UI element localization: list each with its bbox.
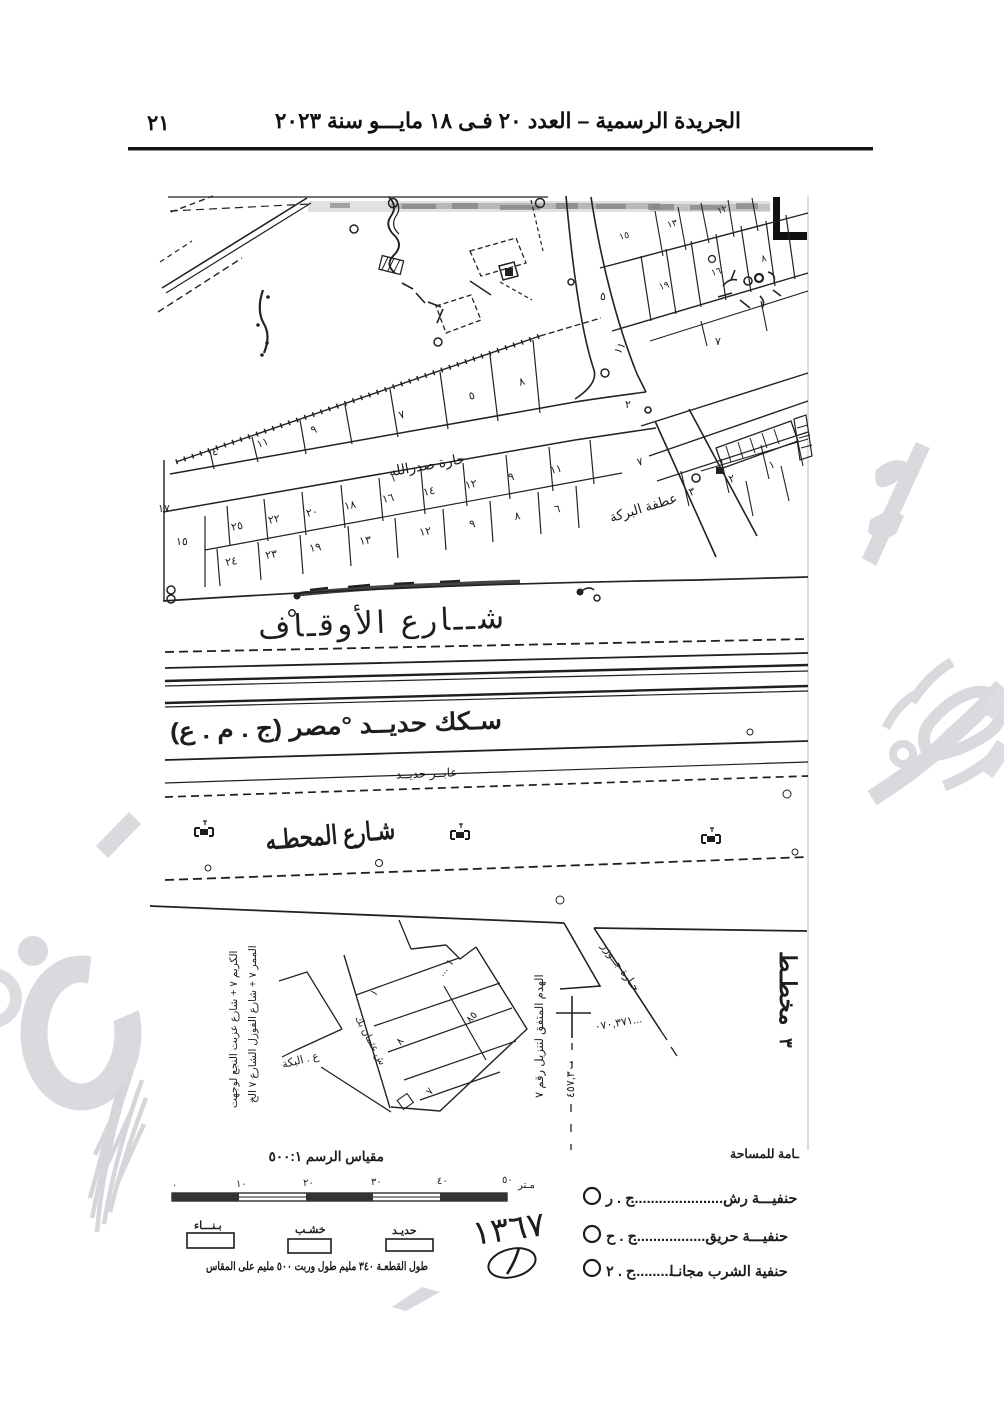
svg-text:٣٠: ٣٠ — [371, 1177, 382, 1188]
svg-text:الهدم المتفق لتنزيل رقم ٧: الهدم المتفق لتنزيل رقم ٧ — [533, 974, 546, 1098]
svg-text:‏٠٧٠,٣٧١...: ‏٠٧٠,٣٧١... — [594, 1013, 643, 1033]
svg-text:مـتر: مـتر — [517, 1180, 535, 1191]
svg-text:٧: ٧ — [424, 1085, 437, 1097]
svg-text:حـارة جــوزر: حـارة جــوزر — [598, 940, 642, 994]
svg-text:٨٥: ٨٥ — [464, 1009, 481, 1026]
svg-text:ـامة للمساحة: ـامة للمساحة — [730, 1147, 800, 1161]
svg-text:٤٠: ٤٠ — [437, 1176, 448, 1187]
svg-text:خشـب: خشـب — [295, 1224, 326, 1236]
svg-text:الممر ٧ + شارع الفوزل الشارع ٧: الممر ٧ + شارع الفوزل الشارع ٧ الخ — [247, 945, 259, 1103]
svg-text:٢٠: ٢٠ — [303, 1178, 314, 1189]
svg-text:حنفيـــة حريق.................: حنفيـــة حريق...................ح . ح — [606, 1229, 788, 1245]
svg-text:١٠: ١٠ — [236, 1179, 247, 1190]
svg-text:شـارع المحطـه: شـارع المحطـه — [264, 814, 396, 856]
svg-text:ع . البكة: ع . البكة — [281, 1050, 321, 1071]
svg-text:٠: ٠ — [172, 1180, 177, 1191]
svg-text:الكريم ٧ + شارع عزبت النجع لوج: الكريم ٧ + شارع عزبت النجع لوجهت — [228, 950, 240, 1108]
svg-text:١٣٦٧: ١٣٦٧ — [470, 1205, 548, 1253]
svg-text:مقياس الرسم ٥٠٠:١: مقياس الرسم ٥٠٠:١ — [269, 1149, 384, 1165]
svg-text:حنفية الشرب مجانـا..........ح: حنفية الشرب مجانـا..........ح . ٢ — [606, 1264, 788, 1280]
svg-text:عابــر حديــد: عابــر حديــد — [396, 765, 458, 781]
svg-text:حديـد: حديـد — [392, 1225, 417, 1237]
svg-text:طول القطعـة ٣٤٠ مليم طول وربت: طول القطعـة ٣٤٠ مليم طول وربت ٥٠٠ مليم ع… — [206, 1260, 428, 1274]
svg-text:مخطـط: مخطـط — [775, 951, 801, 1026]
svg-text:٣: ٣ — [776, 1038, 796, 1048]
svg-text:ش عثمان بك: ش عثمان بك — [352, 1014, 387, 1067]
svg-text:حنفيـــة رش...................: حنفيـــة رش........................ح . ر — [605, 1191, 797, 1207]
svg-text:سـكك حديــد °مصر (ج . م . ع): سـكك حديــد °مصر (ج . م . ع) — [170, 707, 503, 747]
svg-text:٤٥٧,٣٠٠: ٤٥٧,٣٠٠ — [565, 1059, 577, 1098]
svg-text:بـنـــاء: بـنـــاء — [194, 1220, 222, 1232]
svg-text:٥٠: ٥٠ — [502, 1175, 513, 1186]
